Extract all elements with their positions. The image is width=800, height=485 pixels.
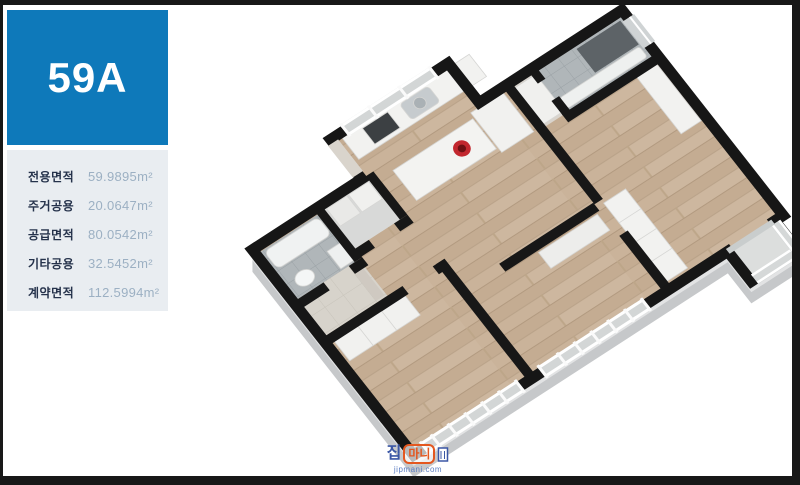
area-label: 주거공용 — [28, 197, 88, 214]
floorplan-3d-image — [200, 0, 800, 485]
area-label: 공급면적 — [28, 226, 88, 243]
watermark: 집 마니 jipmani.com — [358, 444, 478, 474]
frame-border-right — [792, 0, 800, 485]
watermark-url: jipmani.com — [358, 465, 478, 474]
area-row: 공급면적 80.0542m² — [7, 226, 168, 255]
area-label: 계약면적 — [28, 284, 88, 301]
watermark-logo-left: 집 — [387, 446, 402, 462]
area-info-panel: 전용면적 59.9895m² 주거공용 20.0647m² 공급면적 80.05… — [7, 150, 168, 311]
area-value: 32.5452m² — [88, 256, 153, 271]
area-value: 112.5994m² — [88, 285, 159, 300]
frame-border-top — [0, 0, 800, 5]
frame-border-bottom — [0, 476, 800, 485]
area-label: 전용면적 — [28, 168, 88, 185]
watermark-logo-right: 마니 — [403, 444, 435, 464]
area-row: 기타공용 32.5452m² — [7, 255, 168, 284]
area-label: 기타공용 — [28, 255, 88, 272]
page: 59A 전용면적 59.9895m² 주거공용 20.0647m² 공급면적 8… — [0, 0, 800, 485]
frame-border-left — [0, 0, 3, 485]
unit-type-badge: 59A — [7, 10, 168, 145]
unit-type-label: 59A — [47, 54, 127, 102]
building-icon — [437, 446, 449, 462]
area-row: 계약면적 112.5994m² — [7, 284, 168, 313]
area-row: 주거공용 20.0647m² — [7, 197, 168, 226]
area-value: 80.0542m² — [88, 227, 153, 242]
area-row: 전용면적 59.9895m² — [7, 168, 168, 197]
area-value: 59.9895m² — [88, 169, 153, 184]
area-value: 20.0647m² — [88, 198, 153, 213]
watermark-logo: 집 마니 — [358, 444, 478, 464]
